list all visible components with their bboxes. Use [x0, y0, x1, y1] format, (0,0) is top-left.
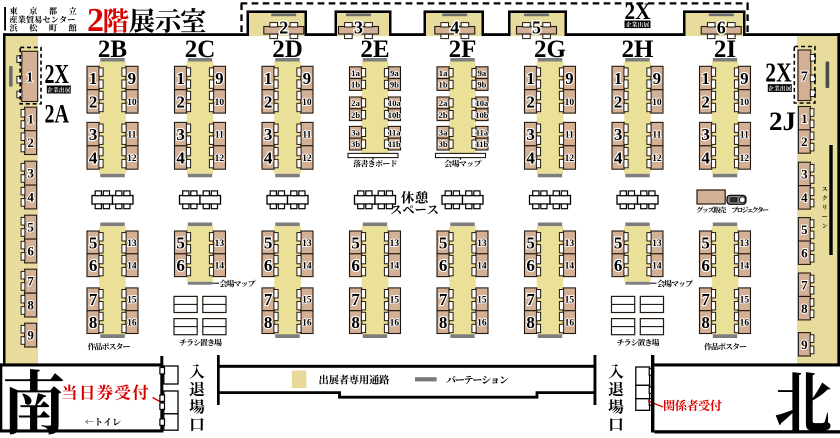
- svg-text:2: 2: [801, 134, 808, 149]
- svg-text:16: 16: [740, 319, 750, 329]
- svg-text:11: 11: [565, 131, 574, 141]
- svg-text:9: 9: [215, 69, 224, 88]
- svg-text:13: 13: [390, 239, 400, 249]
- svg-text:10: 10: [127, 98, 137, 108]
- svg-text:2: 2: [176, 92, 185, 111]
- svg-text:4: 4: [176, 148, 185, 167]
- svg-text:2A: 2A: [45, 100, 70, 129]
- svg-text:13: 13: [127, 239, 137, 249]
- svg-text:11: 11: [740, 131, 749, 141]
- svg-text:10a: 10a: [388, 98, 402, 108]
- svg-text:2: 2: [701, 92, 710, 111]
- svg-text:11a: 11a: [388, 127, 401, 137]
- svg-text:2b: 2b: [351, 110, 360, 120]
- svg-text:3: 3: [89, 125, 98, 144]
- svg-text:15: 15: [740, 296, 750, 306]
- svg-text:16: 16: [390, 319, 400, 329]
- svg-text:2: 2: [614, 92, 623, 111]
- svg-text:5: 5: [526, 233, 535, 252]
- svg-text:3: 3: [614, 125, 623, 144]
- svg-text:5: 5: [439, 233, 448, 252]
- svg-text:5: 5: [701, 233, 710, 252]
- svg-text:4: 4: [89, 148, 98, 167]
- svg-text:1: 1: [801, 111, 808, 126]
- svg-text:14: 14: [127, 262, 137, 272]
- svg-text:12: 12: [215, 154, 225, 164]
- svg-text:7: 7: [701, 290, 710, 309]
- svg-text:3: 3: [27, 166, 34, 181]
- svg-text:12: 12: [652, 154, 662, 164]
- svg-text:7: 7: [801, 277, 808, 292]
- svg-text:13: 13: [477, 239, 487, 249]
- svg-text:2a: 2a: [439, 98, 448, 108]
- svg-text:9a: 9a: [478, 68, 487, 78]
- svg-text:9a: 9a: [390, 68, 399, 78]
- svg-text:3: 3: [176, 125, 185, 144]
- svg-text:14: 14: [740, 262, 750, 272]
- svg-text:9: 9: [801, 337, 808, 352]
- svg-text:5: 5: [532, 18, 541, 38]
- svg-text:11b: 11b: [388, 139, 401, 149]
- svg-text:9: 9: [303, 69, 312, 88]
- svg-text:4: 4: [701, 148, 710, 167]
- svg-text:6: 6: [439, 256, 448, 275]
- svg-text:2: 2: [279, 18, 288, 38]
- svg-text:2X: 2X: [765, 58, 792, 88]
- svg-text:8: 8: [351, 313, 360, 332]
- svg-text:1: 1: [701, 69, 710, 88]
- svg-text:10: 10: [215, 98, 225, 108]
- svg-text:6: 6: [801, 245, 808, 260]
- svg-text:2: 2: [27, 135, 34, 150]
- svg-text:8: 8: [27, 298, 34, 313]
- svg-text:15: 15: [390, 296, 400, 306]
- svg-text:3: 3: [354, 18, 363, 38]
- svg-text:7: 7: [351, 290, 360, 309]
- svg-text:9b: 9b: [390, 80, 399, 90]
- svg-text:11: 11: [127, 131, 136, 141]
- svg-text:7: 7: [27, 274, 34, 289]
- svg-text:1a: 1a: [439, 68, 448, 78]
- svg-text:6: 6: [717, 18, 726, 38]
- svg-text:11: 11: [652, 131, 661, 141]
- svg-text:9: 9: [740, 69, 749, 88]
- svg-text:8: 8: [801, 301, 808, 316]
- svg-text:6: 6: [351, 256, 360, 275]
- svg-text:6: 6: [27, 244, 34, 259]
- svg-text:8: 8: [439, 313, 448, 332]
- svg-text:14: 14: [477, 262, 487, 272]
- svg-text:5: 5: [801, 222, 808, 237]
- svg-text:2: 2: [526, 92, 535, 111]
- svg-text:9: 9: [565, 69, 574, 88]
- svg-text:1: 1: [614, 69, 623, 88]
- svg-text:10: 10: [652, 98, 662, 108]
- svg-text:8: 8: [89, 313, 98, 332]
- svg-text:15: 15: [477, 296, 487, 306]
- svg-text:10b: 10b: [475, 110, 489, 120]
- svg-text:1: 1: [27, 112, 34, 127]
- svg-text:11: 11: [302, 131, 311, 141]
- svg-text:12: 12: [127, 154, 137, 164]
- svg-text:7: 7: [526, 290, 535, 309]
- svg-text:4: 4: [27, 190, 34, 205]
- svg-text:6: 6: [701, 256, 710, 275]
- svg-text:7: 7: [264, 290, 273, 309]
- svg-text:12: 12: [740, 154, 750, 164]
- svg-text:4: 4: [264, 148, 273, 167]
- svg-text:5: 5: [27, 220, 34, 235]
- svg-text:10: 10: [565, 98, 575, 108]
- svg-text:1: 1: [26, 71, 33, 86]
- svg-text:1b: 1b: [351, 80, 360, 90]
- svg-text:10b: 10b: [388, 110, 402, 120]
- svg-text:14: 14: [215, 262, 225, 272]
- svg-text:8: 8: [526, 313, 535, 332]
- svg-text:5: 5: [176, 233, 185, 252]
- svg-text:2: 2: [89, 92, 98, 111]
- svg-text:9: 9: [27, 328, 34, 343]
- svg-text:16: 16: [127, 319, 137, 329]
- svg-text:9b: 9b: [477, 80, 486, 90]
- svg-text:10: 10: [302, 98, 312, 108]
- svg-text:3: 3: [701, 125, 710, 144]
- svg-text:11b: 11b: [475, 139, 488, 149]
- svg-text:11: 11: [215, 131, 224, 141]
- svg-text:1a: 1a: [351, 68, 360, 78]
- svg-text:12: 12: [565, 154, 575, 164]
- svg-text:6: 6: [614, 256, 623, 275]
- svg-text:2J: 2J: [769, 107, 796, 136]
- svg-text:3a: 3a: [351, 127, 360, 137]
- svg-text:13: 13: [302, 239, 312, 249]
- svg-text:8: 8: [264, 313, 273, 332]
- svg-text:4: 4: [801, 190, 808, 205]
- svg-text:6: 6: [176, 256, 185, 275]
- svg-text:14: 14: [302, 262, 312, 272]
- svg-text:14: 14: [565, 262, 575, 272]
- svg-text:13: 13: [740, 239, 750, 249]
- svg-text:15: 15: [127, 296, 137, 306]
- svg-text:5: 5: [89, 233, 98, 252]
- svg-text:9: 9: [128, 69, 137, 88]
- svg-text:2a: 2a: [351, 98, 360, 108]
- svg-text:16: 16: [302, 319, 312, 329]
- svg-text:16: 16: [477, 319, 487, 329]
- svg-text:6: 6: [89, 256, 98, 275]
- svg-text:1: 1: [526, 69, 535, 88]
- svg-text:6: 6: [526, 256, 535, 275]
- svg-text:1: 1: [264, 69, 273, 88]
- svg-text:10: 10: [740, 98, 750, 108]
- svg-text:8: 8: [701, 313, 710, 332]
- svg-text:6: 6: [264, 256, 273, 275]
- svg-text:5: 5: [614, 233, 623, 252]
- svg-text:7: 7: [89, 290, 98, 309]
- svg-text:5: 5: [351, 233, 360, 252]
- svg-text:13: 13: [565, 239, 575, 249]
- svg-text:15: 15: [565, 296, 575, 306]
- svg-text:1: 1: [176, 69, 185, 88]
- svg-text:1b: 1b: [439, 80, 448, 90]
- svg-text:3: 3: [801, 167, 808, 182]
- svg-text:11a: 11a: [476, 127, 489, 137]
- svg-text:15: 15: [302, 296, 312, 306]
- svg-text:10a: 10a: [475, 98, 489, 108]
- svg-text:3: 3: [526, 125, 535, 144]
- svg-text:4: 4: [526, 148, 535, 167]
- svg-text:5: 5: [264, 233, 273, 252]
- svg-text:13: 13: [652, 239, 662, 249]
- svg-text:16: 16: [565, 319, 575, 329]
- svg-text:7: 7: [439, 290, 448, 309]
- svg-text:4: 4: [614, 148, 623, 167]
- svg-text:2X: 2X: [625, 0, 651, 24]
- svg-text:14: 14: [652, 262, 662, 272]
- svg-text:3b: 3b: [351, 139, 360, 149]
- svg-text:3a: 3a: [439, 127, 448, 137]
- svg-text:12: 12: [302, 154, 312, 164]
- svg-text:2: 2: [264, 92, 273, 111]
- svg-text:9: 9: [653, 69, 662, 88]
- svg-text:4: 4: [450, 18, 459, 38]
- svg-text:7: 7: [801, 70, 808, 85]
- svg-text:13: 13: [215, 239, 225, 249]
- svg-text:2X: 2X: [45, 59, 70, 89]
- svg-text:3b: 3b: [439, 139, 448, 149]
- svg-text:2b: 2b: [439, 110, 448, 120]
- svg-text:3: 3: [264, 125, 273, 144]
- svg-text:1: 1: [89, 69, 98, 88]
- svg-text:14: 14: [390, 262, 400, 272]
